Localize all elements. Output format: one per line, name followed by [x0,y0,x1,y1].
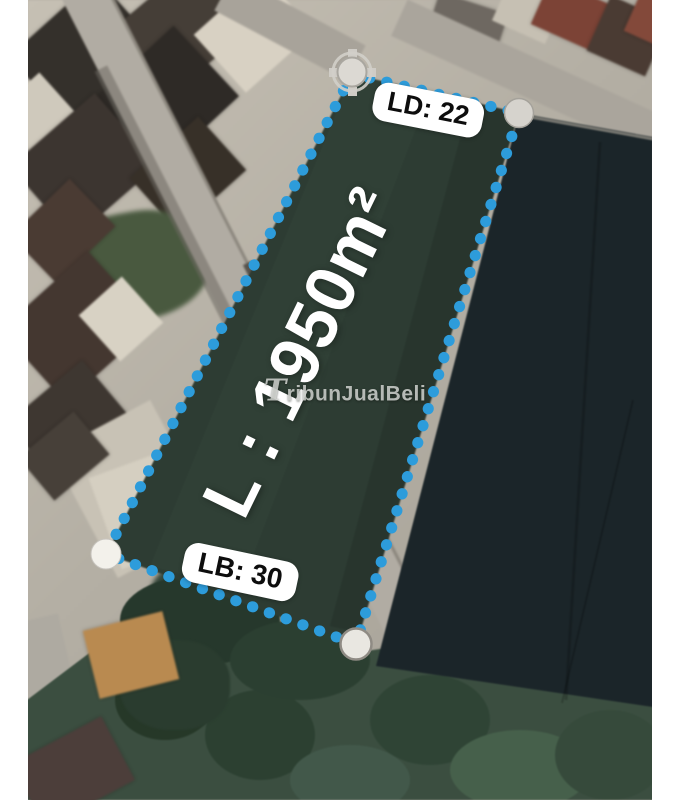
photo-margin-right [652,0,686,800]
land-listing-image: L : 1950m² LD: 22 LB: 30 TribunJualBeli [0,0,686,800]
corner-marker-bottom-left[interactable] [91,539,121,569]
corner-marker-top-active[interactable] [329,49,376,96]
corner-marker-top-right[interactable] [505,99,534,128]
corner-marker-bottom[interactable] [341,629,372,660]
tribunjualbeli-watermark: TribunJualBeli [264,374,426,409]
marker-disc [338,58,367,87]
photo-margin-left [0,0,28,800]
plot-boundary-dotted[interactable] [106,74,519,644]
